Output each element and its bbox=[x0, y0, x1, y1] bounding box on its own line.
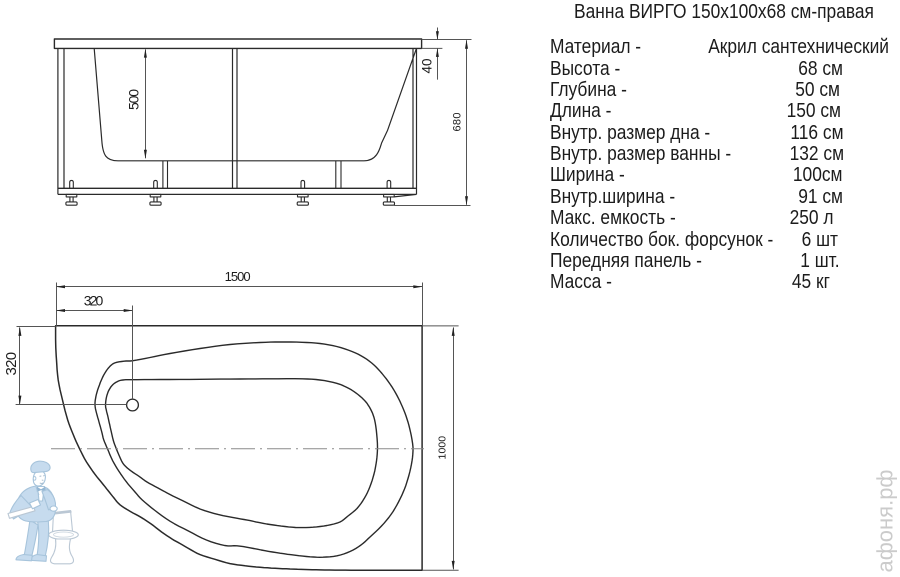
svg-text:320: 320 bbox=[3, 352, 20, 376]
svg-text:40: 40 bbox=[420, 59, 435, 74]
svg-text:320: 320 bbox=[84, 292, 104, 308]
svg-text:1000: 1000 bbox=[436, 436, 448, 460]
svg-text:680: 680 bbox=[451, 113, 463, 132]
svg-text:1500: 1500 bbox=[225, 269, 251, 284]
svg-text:500: 500 bbox=[126, 89, 142, 110]
